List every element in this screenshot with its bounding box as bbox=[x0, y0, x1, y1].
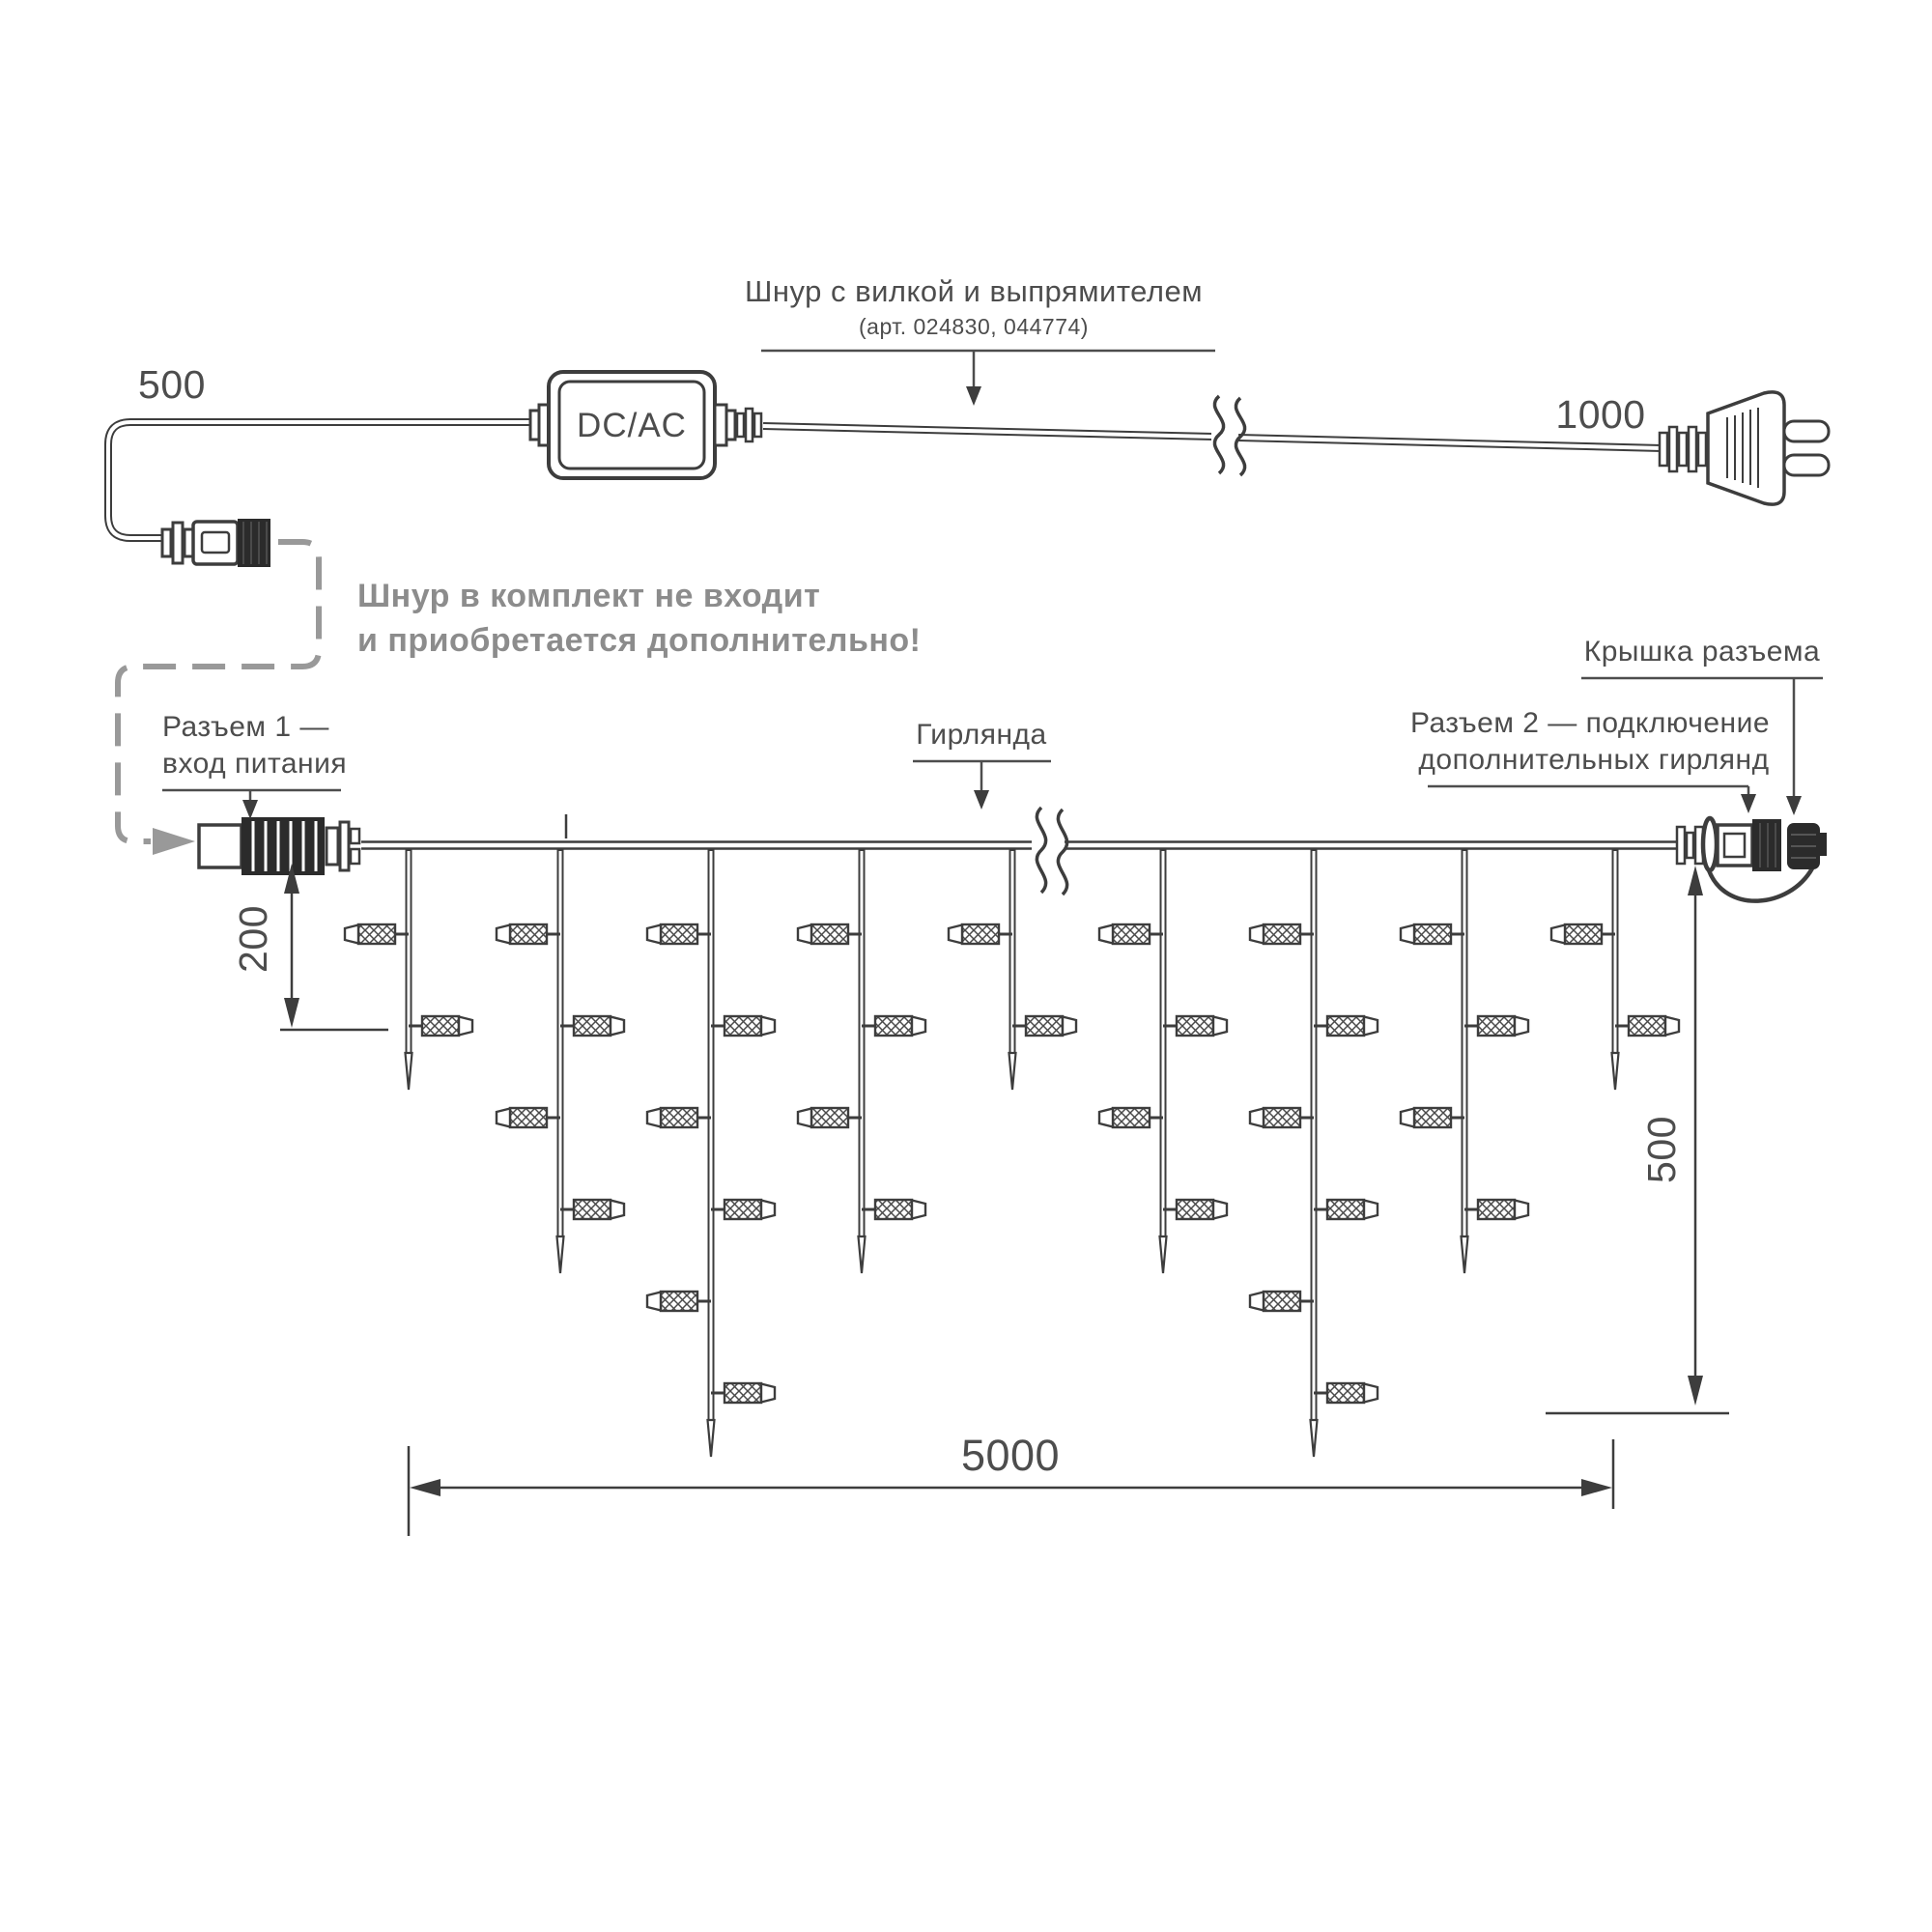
garland-drop bbox=[1551, 847, 1679, 1090]
dashed-arrowhead-icon bbox=[153, 828, 195, 855]
cord-title-arrowhead-icon bbox=[966, 386, 981, 406]
note-line-1: Шнур в комплект не входит bbox=[357, 578, 820, 614]
bulb-icon bbox=[1250, 924, 1314, 944]
bulb-icon bbox=[647, 924, 711, 944]
bulb-icon bbox=[711, 1016, 775, 1036]
garland-drop bbox=[798, 847, 925, 1273]
bulb-icon bbox=[1464, 1016, 1528, 1036]
garland-drop bbox=[647, 847, 775, 1457]
note-line-2: и приобретается дополнительно! bbox=[357, 622, 922, 659]
bulb-icon bbox=[497, 924, 560, 944]
dim-5000-value: 5000 bbox=[961, 1431, 1060, 1480]
cord-subtitle: (арт. 024830, 044774) bbox=[859, 314, 1089, 339]
garland-drop bbox=[345, 847, 472, 1090]
drop-tip bbox=[1160, 1236, 1167, 1273]
power-plug-icon bbox=[1660, 392, 1829, 504]
bulb-icon bbox=[1250, 1108, 1314, 1127]
dim-label-500-cord: 500 bbox=[138, 362, 206, 407]
connector2-label-line1: Разъем 2 — подключение bbox=[1410, 707, 1770, 739]
bulb-icon bbox=[560, 1200, 624, 1219]
connector-cap-icon bbox=[1787, 823, 1827, 869]
not-included-dashed-path bbox=[118, 542, 319, 855]
garland-labels: Разъем 1 — вход питания Гирлянда Крышка … bbox=[162, 636, 1823, 819]
bulb-icon bbox=[1314, 1016, 1378, 1036]
bulb-icon bbox=[497, 1108, 560, 1127]
garland-connector1-icon bbox=[199, 817, 359, 875]
drop-tip bbox=[1462, 1236, 1468, 1273]
cable-break-icon bbox=[1211, 396, 1245, 475]
drop-tip bbox=[708, 1420, 715, 1457]
connector1-label-line1: Разъем 1 — bbox=[162, 711, 329, 743]
cord-cable-left bbox=[108, 422, 529, 538]
bulb-icon bbox=[862, 1016, 925, 1036]
bulb-icon bbox=[1401, 1108, 1464, 1127]
dim-500-value: 500 bbox=[1639, 1116, 1684, 1183]
dim-200: 200 bbox=[231, 864, 388, 1030]
cap-lanyard bbox=[1709, 868, 1812, 901]
garland-drop bbox=[949, 847, 1076, 1090]
drop-tip bbox=[406, 1053, 412, 1090]
bulb-icon bbox=[711, 1200, 775, 1219]
bulb-icon bbox=[647, 1108, 711, 1127]
cord-cable-right bbox=[763, 396, 1662, 475]
garland-diagram: DC/AC bbox=[0, 0, 1932, 1932]
bulb-icon bbox=[1163, 1200, 1227, 1219]
cord-connector-icon bbox=[162, 519, 270, 567]
connector2-callout: Разъем 2 — подключение дополнительных ги… bbox=[1410, 707, 1770, 813]
garland-label: Гирлянда bbox=[916, 719, 1046, 751]
bulb-icon bbox=[345, 924, 409, 944]
connector1-arrowhead-icon bbox=[242, 800, 258, 819]
connector2-label-line2: дополнительных гирлянд bbox=[1418, 744, 1769, 776]
bulb-icon bbox=[1401, 924, 1464, 944]
cap-label: Крышка разъема bbox=[1584, 636, 1820, 668]
cord-labels: Шнур с вилкой и выпрямителем (арт. 02483… bbox=[138, 274, 1646, 659]
bulb-icon bbox=[1099, 924, 1163, 944]
garland bbox=[199, 808, 1827, 1457]
bulb-icon bbox=[1250, 1292, 1314, 1311]
bulb-icon bbox=[1099, 1108, 1163, 1127]
cap-arrowhead-icon bbox=[1786, 796, 1802, 815]
dim-200-value: 200 bbox=[231, 905, 275, 973]
bulb-icon bbox=[711, 1383, 775, 1403]
connector1-label-line2: вход питания bbox=[162, 748, 347, 780]
dim-5000: 5000 bbox=[409, 1431, 1613, 1536]
dim-500: 500 bbox=[1546, 866, 1729, 1413]
bulb-icon bbox=[1163, 1016, 1227, 1036]
bulb-icon bbox=[1615, 1016, 1679, 1036]
garland-drop bbox=[1099, 847, 1227, 1273]
connector2-arrowhead-icon bbox=[1741, 794, 1756, 813]
garland-callout: Гирлянда bbox=[913, 719, 1051, 810]
garland-break-icon bbox=[1032, 808, 1067, 895]
bulb-icon bbox=[1464, 1200, 1528, 1219]
cord-title: Шнур с вилкой и выпрямителем bbox=[745, 274, 1203, 308]
drop-tip bbox=[557, 1236, 564, 1273]
connector1-callout: Разъем 1 — вход питания bbox=[162, 711, 347, 819]
bulb-icon bbox=[1012, 1016, 1076, 1036]
bulb-icon bbox=[1314, 1200, 1378, 1219]
dim-label-1000-cord: 1000 bbox=[1555, 392, 1645, 437]
bulb-icon bbox=[1551, 924, 1615, 944]
garland-drops bbox=[345, 847, 1679, 1457]
bulb-icon bbox=[862, 1200, 925, 1219]
bulb-icon bbox=[798, 924, 862, 944]
dcac-adapter-box: DC/AC bbox=[530, 372, 761, 478]
dcac-label: DC/AC bbox=[577, 407, 687, 444]
garland-drop bbox=[497, 847, 624, 1273]
bulb-icon bbox=[798, 1108, 862, 1127]
drop-tip bbox=[859, 1236, 866, 1273]
bulb-icon bbox=[949, 924, 1012, 944]
bulb-icon bbox=[409, 1016, 472, 1036]
bulb-icon bbox=[1314, 1383, 1378, 1403]
drop-tip bbox=[1311, 1420, 1318, 1457]
bulb-icon bbox=[560, 1016, 624, 1036]
garland-arrowhead-icon bbox=[974, 790, 989, 810]
drop-tip bbox=[1612, 1053, 1619, 1090]
bulb-icon bbox=[647, 1292, 711, 1311]
garland-drop bbox=[1401, 847, 1528, 1273]
garland-drop bbox=[1250, 847, 1378, 1457]
drop-tip bbox=[1009, 1053, 1016, 1090]
